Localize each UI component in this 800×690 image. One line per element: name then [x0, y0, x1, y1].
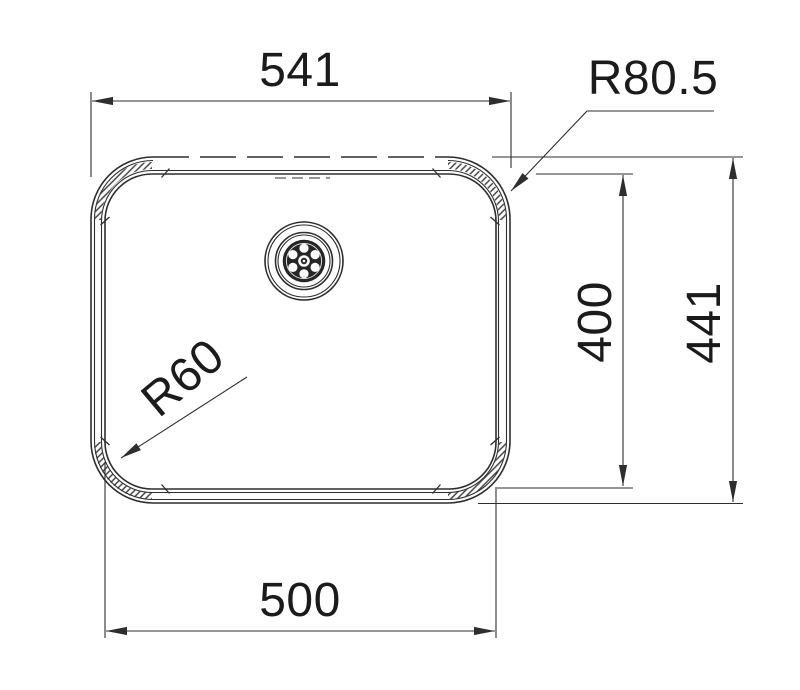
dimension-inner-corner-radius: R60: [121, 329, 247, 458]
arrowhead-top: [619, 175, 627, 196]
dim-label-bottom-width: 500: [259, 574, 341, 627]
dimension-inner-height: 400: [497, 174, 633, 488]
arrowhead-top: [729, 158, 737, 179]
corner-hatch-top-right: [448, 166, 503, 221]
arrowhead-right: [489, 97, 510, 105]
arrowhead-bottom: [619, 465, 627, 486]
dim-label-outer-height: 441: [678, 282, 731, 364]
dim-label-inner-corner-radius: R60: [132, 329, 235, 427]
dim-label-inner-height: 400: [569, 281, 622, 363]
leader-arrowhead: [121, 443, 141, 458]
arrowhead-bottom: [729, 481, 737, 502]
sink-outer-edge: [91, 157, 510, 503]
arrowhead-left: [106, 627, 127, 635]
dim-label-outer-corner-radius: R80.5: [588, 52, 719, 105]
arrowhead-right: [474, 627, 495, 635]
bowl-rim-outer-line: [102, 171, 499, 493]
dimension-outer-corner-radius: R80.5: [511, 52, 718, 191]
sink-technical-drawing-page: 541 R80.5 400 441: [0, 0, 800, 690]
sink-outline: [91, 157, 510, 503]
tangent-ticks: [101, 169, 500, 494]
strainer-center-dot: [303, 260, 306, 263]
dim-label-top-width: 541: [259, 44, 341, 97]
arrowhead-left: [92, 97, 113, 105]
bowl-rim-inner-line: [105, 174, 496, 489]
sink-outer-edge-inner-line: [95, 161, 507, 500]
drain-strainer: [265, 222, 343, 300]
sink-dimension-drawing: 541 R80.5 400 441: [0, 0, 800, 690]
